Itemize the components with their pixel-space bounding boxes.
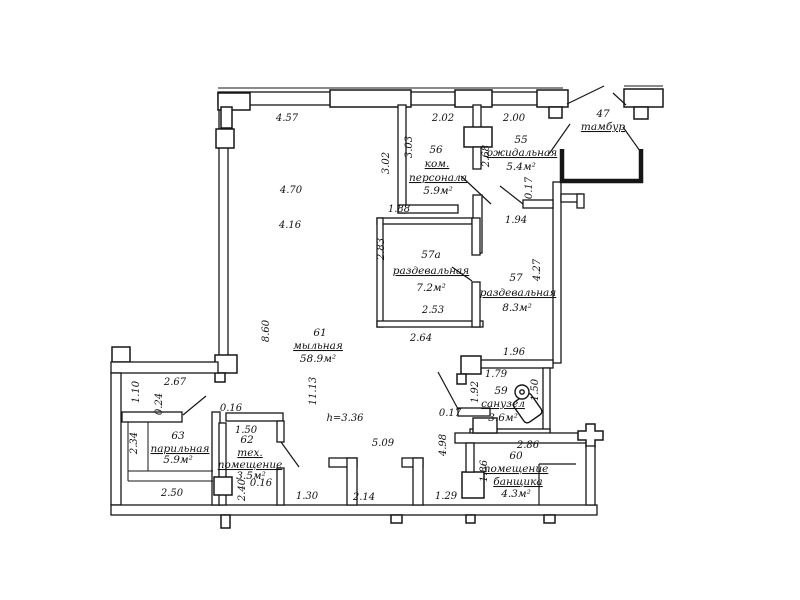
room-57-area: 8.3м²	[502, 302, 532, 314]
room-56-name: персонала	[409, 172, 467, 184]
room-60-number: 60	[509, 450, 523, 462]
room-57a-name: раздевальная	[393, 265, 470, 277]
dimension-label: 1.94	[505, 215, 527, 226]
room-63-area: 5.9м²	[163, 454, 193, 466]
wall-tab	[549, 107, 562, 118]
dimension-label: 1.79	[485, 369, 508, 380]
room-61-area: 58.9м²	[300, 353, 336, 365]
column-block	[461, 356, 481, 374]
door-swing	[183, 396, 206, 415]
wall-tab	[457, 374, 466, 384]
wall-segment	[413, 458, 423, 505]
wall-segment	[577, 194, 584, 208]
dimension-label: 2.14	[352, 492, 375, 503]
room-57-name: раздевальная	[480, 287, 557, 299]
column-block	[214, 477, 232, 495]
wall-segment	[111, 505, 597, 515]
dimension-label: 4.57	[275, 113, 299, 124]
wall-tab	[215, 373, 225, 382]
dimension-label: 8.60	[261, 319, 272, 342]
room-57a-number: 57а	[421, 249, 441, 261]
room-59-area: 3.6м²	[488, 412, 518, 424]
room-59-number: 59	[494, 385, 508, 397]
wall-tab	[221, 107, 232, 128]
dimension-label: 2.34	[129, 432, 140, 455]
wall-segment	[543, 368, 550, 432]
door-swing	[438, 372, 458, 409]
column-block	[216, 129, 234, 148]
wall-segment	[472, 218, 480, 255]
dimension-label: 2.64	[409, 333, 432, 344]
dimension-label: 3.02	[381, 152, 392, 174]
room-47-name: тамбур	[581, 121, 625, 133]
room-63-number: 63	[171, 430, 185, 442]
wall-segment	[111, 373, 121, 505]
dimension-label: 0.17	[439, 408, 462, 419]
room-60-name: помещение	[484, 463, 549, 475]
wall-segment	[111, 362, 218, 373]
wall-segment	[277, 421, 284, 442]
column-block	[537, 90, 568, 107]
dimension-label: 2.83	[376, 238, 387, 261]
wall-tab	[544, 515, 555, 523]
wall-segment	[523, 200, 553, 208]
dimension-label: 2.53	[421, 305, 444, 316]
wall-segment	[562, 149, 641, 181]
wall-tab	[466, 515, 475, 523]
dimension-label: 5.09	[372, 438, 395, 449]
room-57a-area: 7.2м²	[416, 282, 446, 294]
wall-segment	[470, 360, 553, 368]
dimension-label: 0.24	[154, 393, 165, 415]
room-59-name: санузел	[481, 398, 525, 410]
dimension-label: 1.30	[296, 491, 319, 502]
wall-tab	[634, 107, 648, 119]
dimension-label: 4.70	[279, 185, 303, 196]
dimension-label: 1.10	[131, 380, 142, 403]
room-56-name: ком.	[425, 158, 450, 170]
door-swing	[500, 186, 523, 204]
room-61-number: 61	[313, 327, 326, 339]
wall-segment	[277, 468, 284, 505]
toilet-bowl-center	[520, 390, 524, 394]
floor-plan-page: 4.57 2.02 2.00 4.70 4.16 3.02 3.03 1.88 …	[0, 0, 800, 600]
dimension-label: 11.13	[308, 377, 319, 406]
room-55-name: ожидальная	[487, 147, 558, 159]
shower-partitions	[329, 458, 423, 505]
wall-segment	[122, 412, 182, 422]
wall-segment	[226, 413, 283, 421]
wall-segment	[473, 147, 481, 169]
wall-tab	[221, 515, 230, 528]
dimension-label: 2.00	[502, 113, 526, 124]
dimension-label: 0.17	[524, 176, 535, 199]
column-block	[464, 127, 492, 147]
room-62-area: 3.5м²	[236, 470, 266, 482]
room-56-number: 56	[429, 144, 443, 156]
room-60-area: 4.3м²	[500, 488, 531, 500]
wall-segment	[377, 218, 472, 224]
dimension-label: 2.50	[160, 488, 184, 499]
dimension-label: 4.27	[532, 258, 543, 282]
wall-tab	[391, 515, 402, 523]
ceiling-height-label: h=3.36	[326, 413, 364, 424]
dimension-label: 2.67	[163, 377, 187, 388]
room-47-number: 47	[595, 108, 610, 120]
room-61-name: мыльная	[293, 340, 343, 352]
room-57-number: 57	[509, 272, 523, 284]
wall-segment	[466, 443, 474, 472]
dimension-label: 1.29	[435, 491, 458, 502]
room-55-number: 55	[514, 134, 528, 146]
dimension-label: 1.92	[470, 381, 481, 403]
dimension-label: 0.16	[220, 403, 243, 414]
wall-segment	[377, 321, 483, 327]
dimension-label: 4.98	[438, 434, 449, 457]
wall-segment	[553, 182, 561, 363]
wall-segment	[473, 105, 481, 129]
wall-segment	[377, 218, 383, 327]
dimension-label: 4.16	[278, 220, 302, 231]
dimension-label: 2.02	[431, 113, 454, 124]
dimension-label: 1.96	[503, 347, 526, 358]
dimension-label: 3.03	[404, 136, 415, 158]
column-block	[112, 347, 130, 362]
dimension-label: 1.88	[388, 204, 410, 215]
room-62-number: 62	[240, 434, 254, 446]
wall-segment	[586, 446, 595, 505]
room-60-name: банщика	[493, 476, 542, 488]
floor-plan-svg: 4.57 2.02 2.00 4.70 4.16 3.02 3.03 1.88 …	[0, 0, 800, 600]
door-swing	[567, 86, 604, 104]
door-swing	[281, 442, 299, 467]
column-block	[624, 89, 663, 107]
room-56-area: 5.9м²	[423, 185, 453, 197]
dimension-label: 1.50	[530, 378, 541, 401]
room-62-name: тех.	[237, 447, 262, 459]
door-swing	[623, 127, 640, 151]
room-55-area: 5.4м²	[506, 161, 536, 173]
